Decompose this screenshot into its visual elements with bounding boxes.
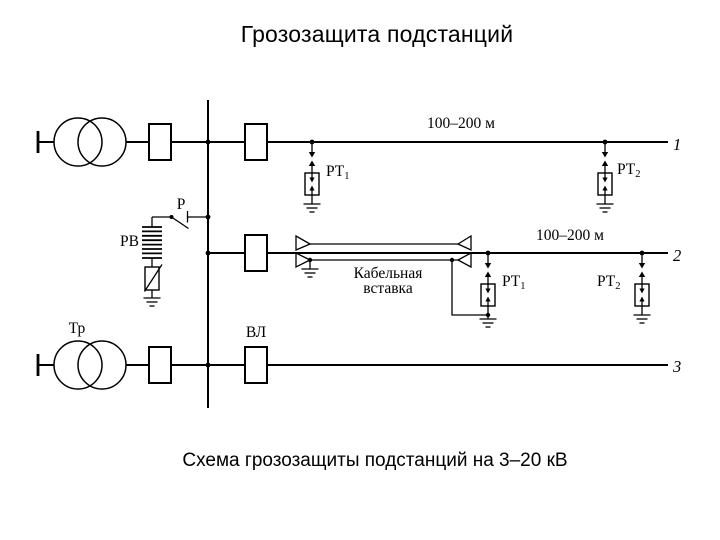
- rt2-label-line1: РТ2: [617, 161, 641, 180]
- ground-icon: [597, 204, 614, 212]
- valve-arrester-label: РВ: [120, 233, 139, 250]
- line3-number: 3: [672, 357, 681, 376]
- ground-icon: [302, 269, 319, 277]
- junction-dot: [603, 140, 608, 145]
- junction-dot: [640, 251, 645, 256]
- cable-end-funnel-left-top: [296, 236, 310, 250]
- cable-insert-label-line2: вставка: [363, 280, 413, 297]
- rt2-label-line2: РТ2: [597, 273, 621, 292]
- tubular-arrester-rt2-line2: [635, 253, 649, 315]
- transformer-label: Тр: [69, 320, 86, 337]
- switch-cell-line3-left: [149, 347, 171, 383]
- switch-cell-line1-left: [149, 124, 171, 160]
- slide: Грозозащита подстанций: [0, 0, 720, 540]
- switch-cell-line3-right: [245, 347, 267, 383]
- junction-dot: [206, 363, 211, 368]
- junction-dot: [308, 258, 312, 262]
- ground-icon: [144, 298, 161, 306]
- tubular-arrester-rt2-line1: [598, 142, 612, 204]
- distance-label-line1: 100–200 м: [427, 115, 495, 132]
- junction-dot: [206, 140, 211, 145]
- cable-end-funnel-right-bottom: [458, 253, 471, 267]
- line1-number: 1: [673, 135, 681, 154]
- ground-icon: [304, 204, 321, 212]
- junction-dot: [450, 258, 454, 262]
- junction-dot: [206, 215, 211, 220]
- junction-dot: [486, 313, 490, 317]
- main-conductors: [38, 100, 668, 408]
- rt1-label-line2: РТ1: [502, 273, 526, 292]
- tubular-arrester-rt1-line2: [481, 253, 495, 315]
- switch-cell-line2: [245, 235, 267, 271]
- disconnector-blade: [172, 217, 189, 229]
- ground-icon: [480, 319, 497, 327]
- cable-end-funnel-right-top: [458, 236, 471, 250]
- tubular-arrester-rt1-line1: [305, 142, 319, 204]
- caption: Схема грозозащиты подстанций на 3–20 кВ: [0, 450, 720, 472]
- junction-dot: [206, 251, 211, 256]
- distance-label-line2: 100–200 м: [536, 227, 604, 244]
- junction-dot: [486, 251, 491, 256]
- overhead-line-label: ВЛ: [246, 324, 267, 341]
- valve-arrester-branch: [142, 211, 208, 306]
- junction-dot: [310, 140, 315, 145]
- rt1-label-line1: РТ1: [326, 163, 350, 182]
- valve-arrester-icon: [142, 227, 162, 258]
- ground-icon: [634, 315, 651, 323]
- switch-cell-line1-right: [245, 124, 267, 160]
- disconnector-label: Р: [177, 196, 186, 213]
- line2-number: 2: [673, 246, 681, 265]
